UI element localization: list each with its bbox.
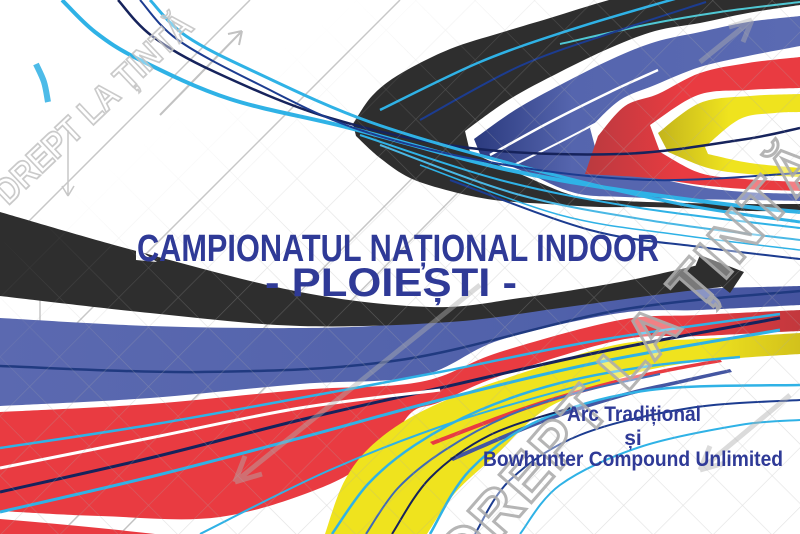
svg-text:Bowhunter Compound Unlimited: Bowhunter Compound Unlimited <box>483 448 783 471</box>
svg-text:Arc Tradițional: Arc Tradițional <box>567 403 701 426</box>
svg-text:- PLOIEȘTI -: - PLOIEȘTI - <box>265 261 517 305</box>
svg-text:și: și <box>624 427 642 450</box>
